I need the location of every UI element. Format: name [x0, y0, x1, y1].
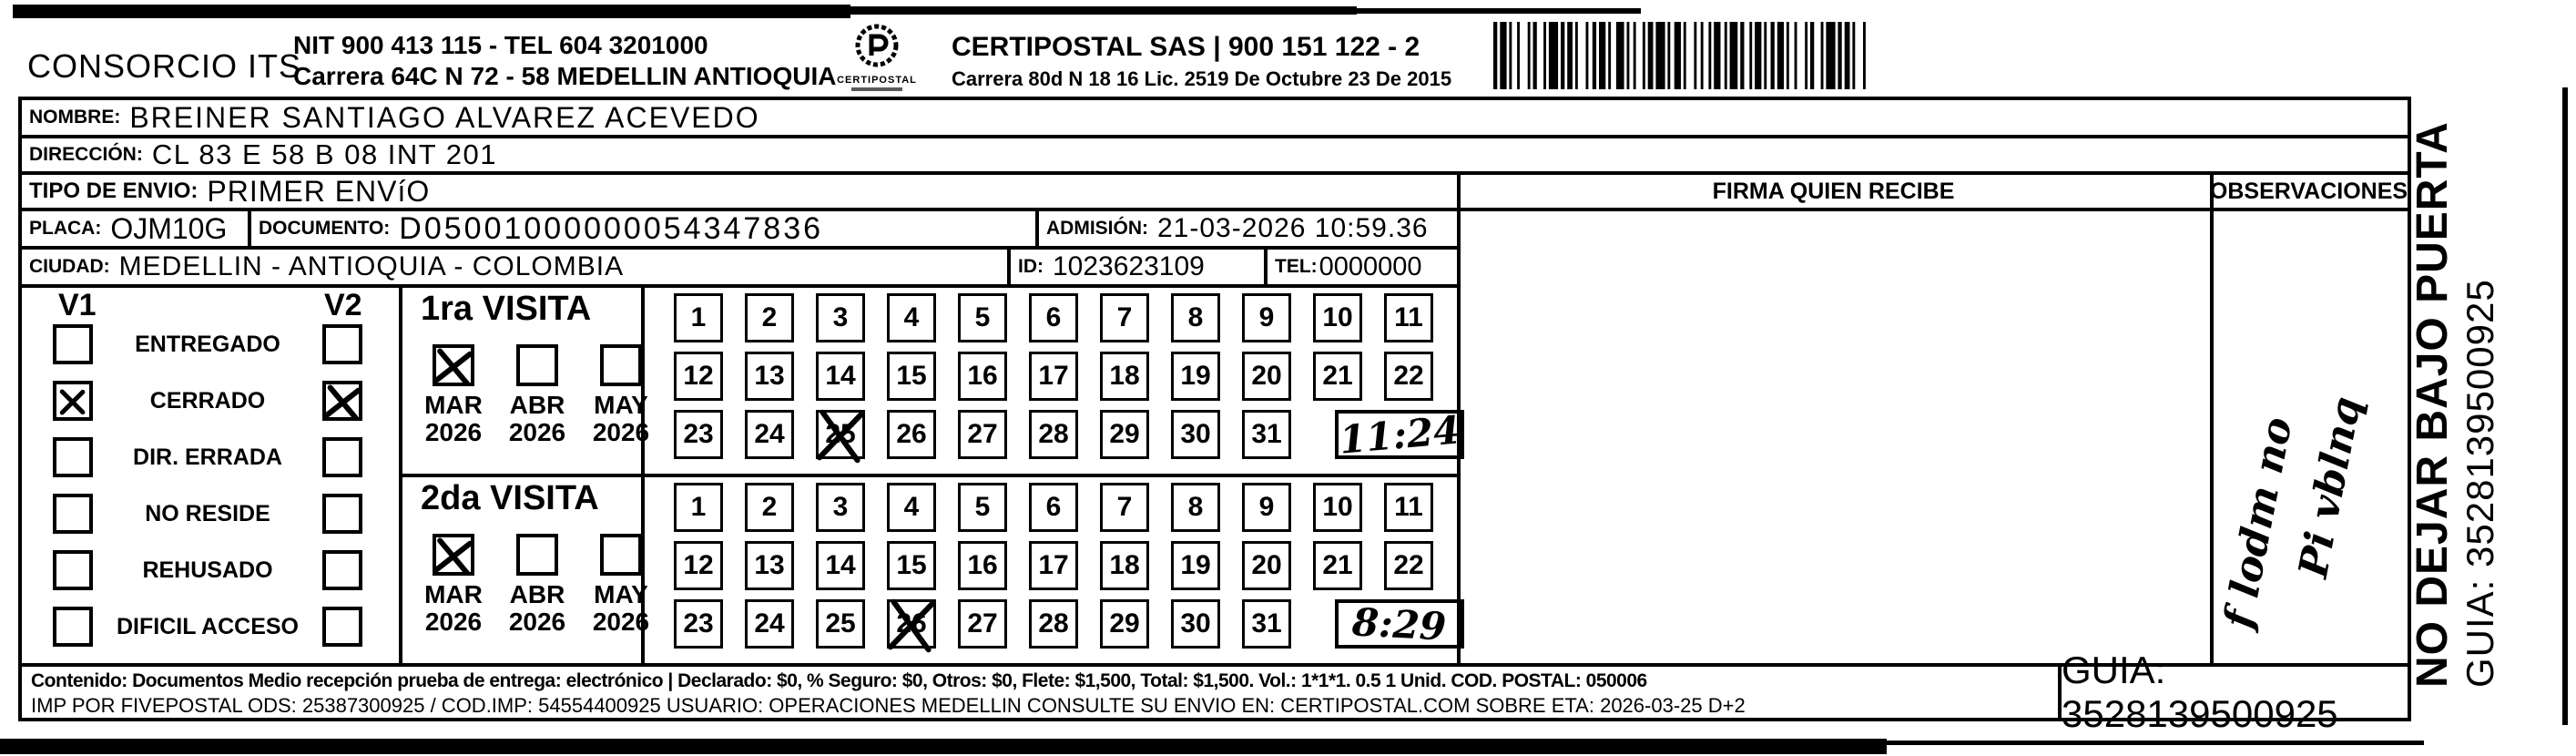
v2-column-header: V2 — [324, 288, 362, 323]
carrier-name: CERTIPOSTAL SAS | 900 151 122 - 2 — [952, 32, 1420, 63]
status-option-label: DIFICIL ACCESO — [106, 614, 310, 640]
placa-label: PLACA: — [29, 218, 101, 240]
day-cell-21: 21 — [1313, 541, 1362, 590]
month-year-label: 2026 — [593, 419, 649, 446]
direccion-value: CL 83 E 58 B 08 INT 201 — [152, 138, 497, 171]
day-cell-5: 5 — [958, 293, 1007, 342]
admision-cell: ADMISIÓN: 21-03-2026 10:59.36 — [1035, 211, 1457, 250]
footer-content-line: Contenido: Documentos Medio recepción pr… — [31, 670, 2043, 692]
day-cell-3: 3 — [816, 483, 865, 532]
day-cell-13: 13 — [745, 352, 794, 401]
day-cell-22: 22 — [1384, 541, 1433, 590]
status-row-cerrado: CERRADO — [22, 381, 399, 424]
side-guia: GUIA: 3528139500925 — [2458, 123, 2503, 688]
company-name: CONSORCIO ITS — [27, 47, 301, 86]
month-checkbox — [433, 534, 474, 576]
day-cell-18: 18 — [1100, 352, 1149, 401]
day-cell-17: 17 — [1029, 541, 1078, 590]
handwritten-note: f lodm no Pi vblnq — [2207, 201, 2415, 646]
nombre-row: NOMBRE: BREINER SANTIAGO ALVAREZ ACEVEDO — [22, 100, 2408, 138]
tipo-envio-cell: TIPO DE ENVIO: PRIMER ENVíO — [22, 175, 1457, 211]
direccion-label: DIRECCIÓN: — [29, 144, 143, 166]
v1-column-header: V1 — [58, 288, 97, 323]
day-cell-29: 29 — [1100, 599, 1149, 649]
month-handwritten-x — [436, 537, 471, 572]
day-cell-4: 4 — [887, 293, 936, 342]
v1-checkbox — [53, 324, 93, 364]
day-cell-28: 28 — [1029, 410, 1078, 459]
day-cell-1: 1 — [674, 293, 723, 342]
v2-checkbox — [322, 494, 362, 534]
day-cell-7: 7 — [1100, 293, 1149, 342]
status-row-dificil-acceso: DIFICIL ACCESO — [22, 607, 399, 650]
tel-label: TEL: — [1275, 256, 1318, 278]
logo-smudge — [851, 87, 902, 91]
firma-signature-area — [1461, 211, 2210, 663]
day-cell-4: 4 — [887, 483, 936, 532]
admision-value: 21-03-2026 10:59.36 — [1157, 213, 1429, 244]
month-checkbox — [516, 344, 558, 386]
day-cell-27: 27 — [958, 599, 1007, 649]
certipostal-logo-caption: CERTIPOSTAL — [836, 75, 918, 86]
placa-cell: PLACA: OJM10G — [22, 211, 248, 250]
scan-artifact-top-bar — [850, 6, 1357, 15]
visit-section-2: 2da VISITA MAR2026ABR2026MAY2026 1234567… — [402, 477, 1457, 663]
day-cell-19: 19 — [1171, 541, 1220, 590]
day-grid-row: 1213141516171819202122 — [674, 352, 1433, 401]
scan-artifact-bottom-bar — [0, 739, 1887, 754]
day-cell-11: 11 — [1384, 483, 1433, 532]
month-handwritten-x — [436, 348, 471, 383]
day-cell-24: 24 — [745, 599, 794, 649]
month-label: MAY — [594, 581, 648, 608]
status-option-label: ENTREGADO — [106, 332, 310, 358]
nombre-value: BREINER SANTIAGO ALVAREZ ACEVEDO — [129, 101, 759, 135]
month-year-label: 2026 — [425, 608, 482, 636]
v1-checkbox — [53, 550, 93, 590]
day-cell-13: 13 — [745, 541, 794, 590]
day-grid-row: 23242526272829303111:24 — [674, 410, 1464, 459]
tel-value: 0000000 — [1319, 252, 1422, 282]
day-cell-20: 20 — [1242, 352, 1291, 401]
day-cell-20: 20 — [1242, 541, 1291, 590]
day-grid-row: 1213141516171819202122 — [674, 541, 1433, 590]
v1-checkbox — [53, 494, 93, 534]
day-cell-1: 1 — [674, 483, 723, 532]
certipostal-logo-icon — [849, 22, 905, 73]
day-cell-8: 8 — [1171, 483, 1220, 532]
day-cell-11: 11 — [1384, 293, 1433, 342]
status-row-entregado: ENTREGADO — [22, 324, 399, 368]
month-label: ABR — [510, 392, 565, 419]
day-cell-21: 21 — [1313, 352, 1362, 401]
day-cell-2: 2 — [745, 293, 794, 342]
v2-checkbox — [322, 437, 362, 477]
status-row-no-reside: NO RESIDE — [22, 494, 399, 537]
day-grid-row: 2324252627282930318:29 — [674, 599, 1464, 649]
v2-checkbox — [322, 607, 362, 647]
firma-column-header: FIRMA QUIEN RECIBE — [1457, 175, 2210, 211]
day-cell-16: 16 — [958, 352, 1007, 401]
month-option-may: MAY2026 — [581, 344, 661, 446]
month-option-mar: MAR2026 — [413, 344, 494, 446]
crossed-day-mark — [819, 413, 862, 456]
month-label: MAY — [594, 392, 648, 419]
day-cell-31: 31 — [1242, 410, 1291, 459]
tel-cell: TEL: 0000000 — [1264, 250, 1457, 288]
day-cell-10: 10 — [1313, 483, 1362, 532]
delivery-form-table: NOMBRE: BREINER SANTIAGO ALVAREZ ACEVEDO… — [18, 97, 2411, 721]
day-cell-30: 30 — [1171, 410, 1220, 459]
month-year-label: 2026 — [425, 419, 482, 446]
v2-handwritten-x — [326, 384, 359, 417]
v2-checkbox — [322, 381, 362, 421]
v1-checkbox — [53, 607, 93, 647]
v1-check-mark — [56, 384, 89, 417]
status-panel: V1 V2 ENTREGADOCERRADODIR. ERRADANO RESI… — [22, 288, 399, 663]
handwritten-time: 8:29 — [1351, 599, 1448, 649]
status-option-label: NO RESIDE — [106, 501, 310, 527]
certipostal-logo: CERTIPOSTAL — [836, 22, 918, 91]
day-cell-25: 25 — [816, 599, 865, 649]
day-cell-6: 6 — [1029, 293, 1078, 342]
direccion-row: DIRECCIÓN: CL 83 E 58 B 08 INT 201 — [22, 138, 2408, 175]
nombre-label: NOMBRE: — [29, 107, 120, 128]
month-year-label: 2026 — [509, 419, 565, 446]
v2-checkbox — [322, 324, 362, 364]
tracking-barcode — [1490, 22, 1872, 89]
day-cell-9: 9 — [1242, 293, 1291, 342]
day-cell-6: 6 — [1029, 483, 1078, 532]
company-address: Carrera 64C N 72 - 58 MEDELLIN ANTIOQUIA — [293, 62, 836, 91]
day-cell-24: 24 — [745, 410, 794, 459]
day-cell-12: 12 — [674, 541, 723, 590]
guia-number-box: GUIA: 3528139500925 — [2058, 663, 2408, 718]
v1-checkbox — [53, 437, 93, 477]
month-checkbox — [600, 534, 642, 576]
day-cell-29: 29 — [1100, 410, 1149, 459]
tipo-envio-label: TIPO DE ENVIO: — [29, 179, 198, 204]
scanned-delivery-form: CONSORCIO ITS NIT 900 413 115 - TEL 604 … — [0, 0, 2576, 756]
documento-label: DOCUMENTO: — [259, 218, 390, 240]
month-option-mar: MAR2026 — [413, 534, 494, 636]
day-cell-25: 25 — [816, 410, 865, 459]
placa-value: OJM10G — [110, 212, 227, 246]
month-option-abr: ABR2026 — [497, 534, 577, 636]
id-cell: ID: 1023623109 — [1007, 250, 1264, 288]
footer-imp-line: IMP POR FIVEPOSTAL ODS: 25387300925 / CO… — [31, 694, 2043, 718]
day-cell-22: 22 — [1384, 352, 1433, 401]
month-label: ABR — [510, 581, 565, 608]
scan-artifact-top-bar — [1357, 8, 1641, 14]
month-option-abr: ABR2026 — [497, 344, 577, 446]
scan-artifact-bottom-bar — [1887, 741, 2424, 745]
status-option-label: REHUSADO — [106, 557, 310, 584]
month-option-may: MAY2026 — [581, 534, 661, 636]
carrier-address: Carrera 80d N 18 16 Lic. 2519 De Octubre… — [952, 67, 1451, 91]
month-checkbox — [600, 344, 642, 386]
day-cell-19: 19 — [1171, 352, 1220, 401]
company-nit-tel: NIT 900 413 115 - TEL 604 3201000 — [293, 31, 708, 60]
side-strip: NO DEJAR BAJO PUERTA GUIA: 3528139500925 — [2408, 123, 2509, 688]
documento-cell: DOCUMENTO: D05001000000054347836 — [248, 211, 1035, 250]
footer-row: Contenido: Documentos Medio recepción pr… — [22, 663, 2408, 718]
day-cell-14: 14 — [816, 541, 865, 590]
side-instruction: NO DEJAR BAJO PUERTA — [2408, 123, 2458, 688]
handwritten-time: 11:24 — [1338, 407, 1461, 462]
day-cell-8: 8 — [1171, 293, 1220, 342]
day-cell-28: 28 — [1029, 599, 1078, 649]
crossed-day-mark — [890, 602, 933, 646]
day-grid-row: 1234567891011 — [674, 483, 1433, 532]
day-grid-row: 1234567891011 — [674, 293, 1433, 342]
month-checkbox — [433, 344, 474, 386]
month-label: MAR — [424, 392, 483, 419]
month-label: MAR — [424, 581, 483, 608]
visit-1-title: 1ra VISITA — [421, 290, 591, 329]
visit-2-title: 2da VISITA — [421, 479, 599, 518]
day-cell-26: 26 — [887, 599, 936, 649]
status-option-label: DIR. ERRADA — [106, 444, 310, 471]
ciudad-value: MEDELLIN - ANTIOQUIA - COLOMBIA — [119, 251, 624, 282]
tipo-envio-value: PRIMER ENVíO — [207, 175, 430, 209]
observaciones-area: f lodm no Pi vblnq — [2214, 211, 2408, 663]
day-cell-12: 12 — [674, 352, 723, 401]
day-cell-23: 23 — [674, 599, 723, 649]
status-row-dir-errada: DIR. ERRADA — [22, 437, 399, 481]
month-year-label: 2026 — [509, 608, 565, 636]
day-cell-14: 14 — [816, 352, 865, 401]
day-cell-26: 26 — [887, 410, 936, 459]
ciudad-cell: CIUDAD: MEDELLIN - ANTIOQUIA - COLOMBIA — [22, 250, 1007, 288]
status-option-label: CERRADO — [106, 388, 310, 414]
scan-artifact-right-line — [2562, 87, 2568, 725]
ciudad-label: CIUDAD: — [29, 256, 110, 278]
id-label: ID: — [1018, 256, 1044, 278]
v2-checkbox — [322, 550, 362, 590]
day-cell-17: 17 — [1029, 352, 1078, 401]
month-checkbox — [516, 534, 558, 576]
month-year-label: 2026 — [593, 608, 649, 636]
day-cell-23: 23 — [674, 410, 723, 459]
day-cell-31: 31 — [1242, 599, 1291, 649]
day-cell-7: 7 — [1100, 483, 1149, 532]
day-cell-2: 2 — [745, 483, 794, 532]
visit-time-box: 11:24 — [1335, 410, 1464, 459]
documento-value: D05001000000054347836 — [399, 211, 823, 247]
admision-label: ADMISIÓN: — [1046, 218, 1148, 240]
day-cell-3: 3 — [816, 293, 865, 342]
day-cell-16: 16 — [958, 541, 1007, 590]
day-cell-15: 15 — [887, 541, 936, 590]
day-cell-15: 15 — [887, 352, 936, 401]
day-cell-30: 30 — [1171, 599, 1220, 649]
day-cell-5: 5 — [958, 483, 1007, 532]
status-row-rehusado: REHUSADO — [22, 550, 399, 594]
v1-checkbox — [53, 381, 93, 421]
visit-time-box: 8:29 — [1335, 599, 1464, 649]
visit-section-1: 1ra VISITA MAR2026ABR2026MAY2026 1234567… — [402, 288, 1457, 474]
scan-artifact-top-bar — [13, 5, 850, 18]
day-cell-9: 9 — [1242, 483, 1291, 532]
day-cell-10: 10 — [1313, 293, 1362, 342]
id-value: 1023623109 — [1053, 251, 1205, 282]
day-cell-27: 27 — [958, 410, 1007, 459]
day-cell-18: 18 — [1100, 541, 1149, 590]
